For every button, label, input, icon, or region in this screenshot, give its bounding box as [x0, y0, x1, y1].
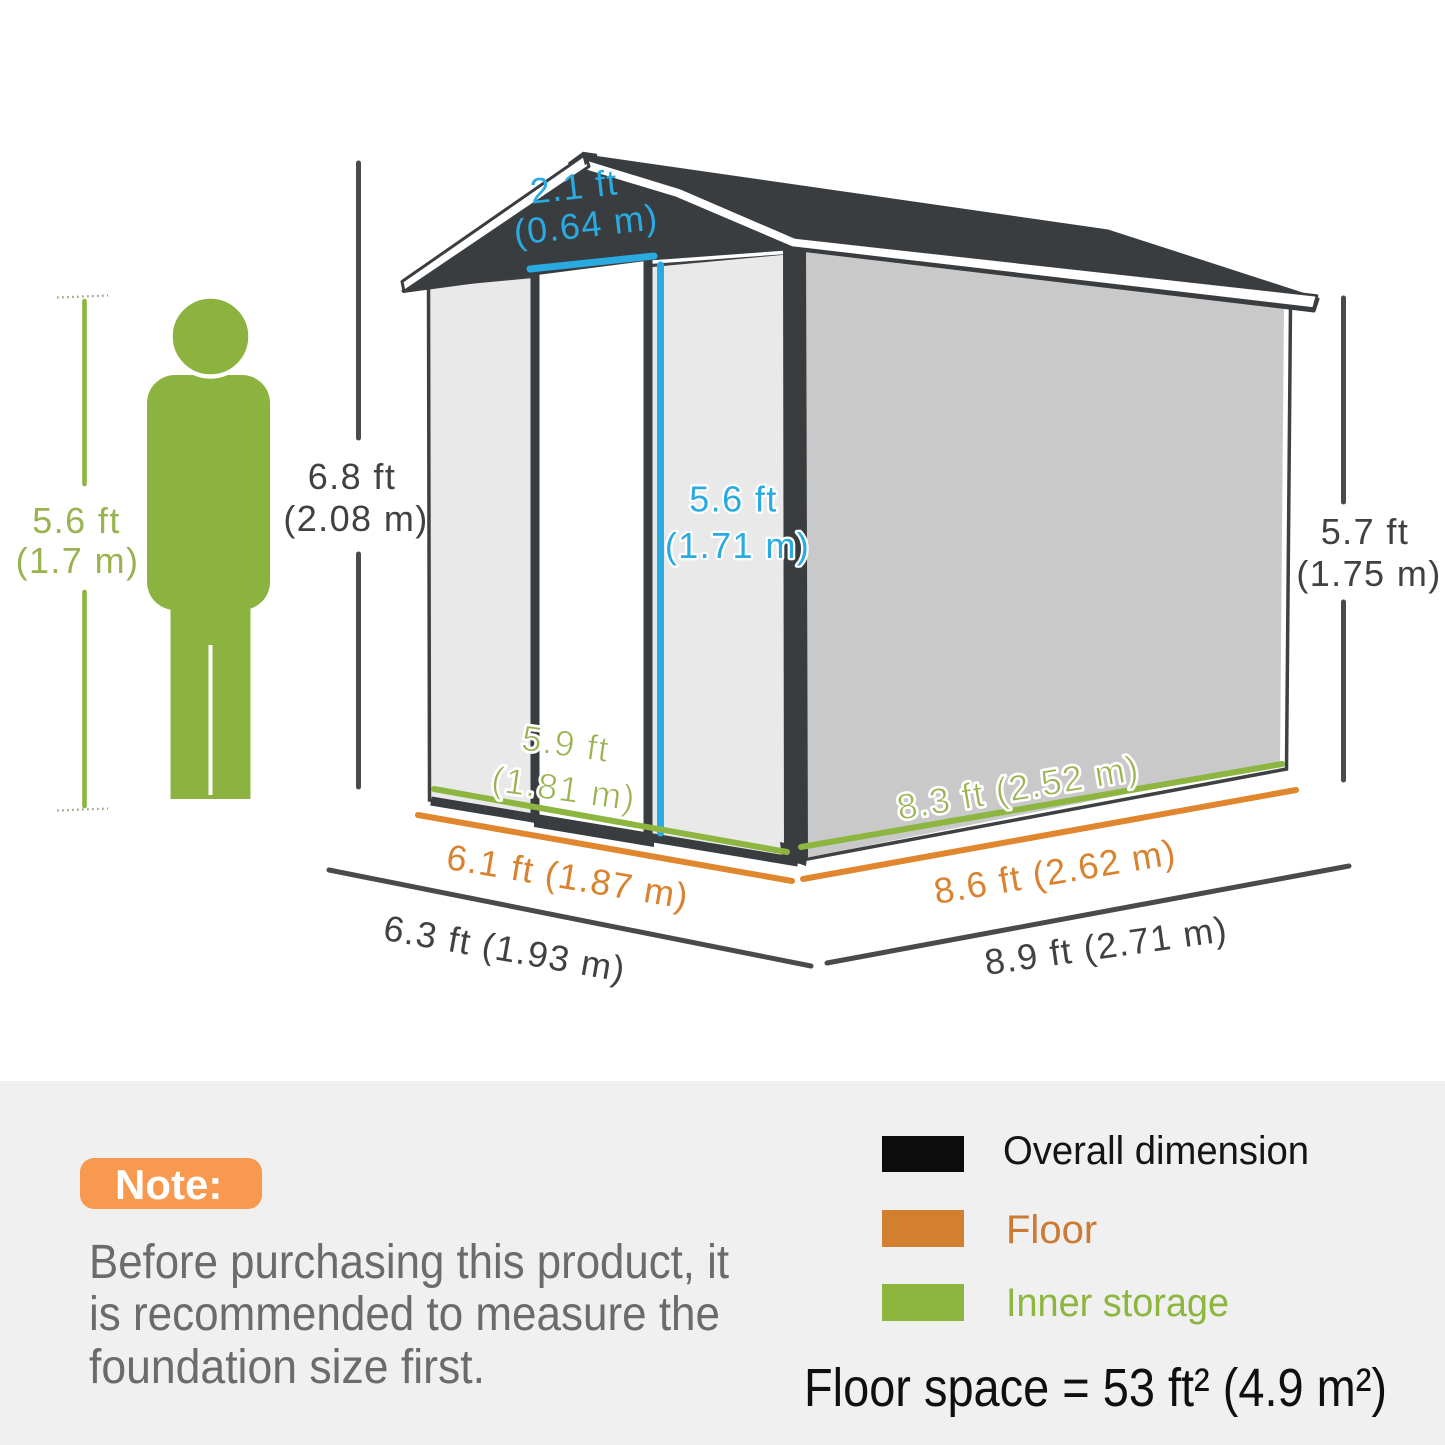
svg-text:(1.7 m): (1.7 m)	[16, 540, 140, 581]
svg-text:6.8 ft: 6.8 ft	[308, 456, 396, 497]
svg-text:Before purchasing this product: Before purchasing this product, it	[89, 1236, 729, 1289]
svg-text:(1.71 m): (1.71 m)	[665, 525, 810, 566]
svg-text:is recommended to measure the: is recommended to measure the	[89, 1288, 720, 1341]
svg-text:Overall dimension: Overall dimension	[1003, 1129, 1309, 1173]
svg-text:Inner storage: Inner storage	[1006, 1281, 1229, 1325]
svg-text:5.6 ft: 5.6 ft	[32, 500, 120, 541]
svg-text:Floor space = 53 ft² (4.9 m²): Floor space = 53 ft² (4.9 m²)	[804, 1358, 1387, 1418]
svg-text:Floor: Floor	[1006, 1208, 1097, 1252]
svg-text:Note:: Note:	[115, 1161, 222, 1208]
svg-text:5.6 ft: 5.6 ft	[689, 479, 777, 520]
svg-text:foundation size first.: foundation size first.	[89, 1341, 485, 1394]
svg-text:(2.08 m): (2.08 m)	[283, 498, 428, 539]
svg-text:5.7 ft: 5.7 ft	[1321, 511, 1409, 552]
svg-text:(1.75 m): (1.75 m)	[1296, 553, 1441, 594]
